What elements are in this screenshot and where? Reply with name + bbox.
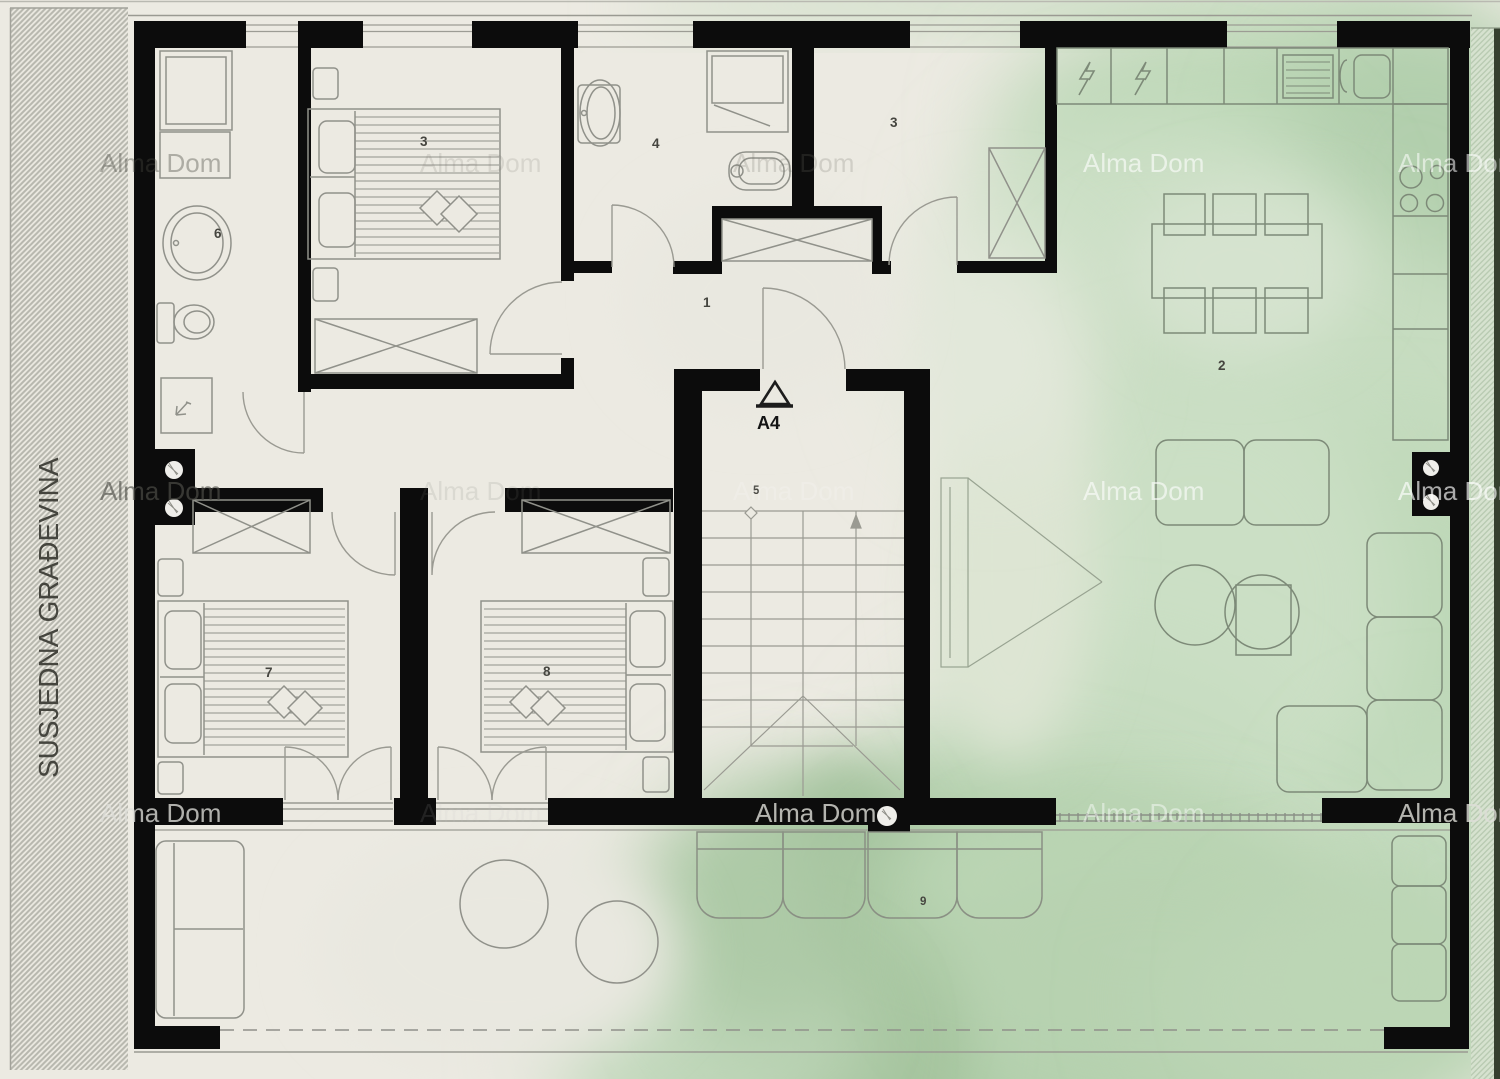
svg-text:Alma Dom: Alma Dom <box>100 798 221 828</box>
svg-text:7: 7 <box>265 665 273 680</box>
svg-text:Alma Dom: Alma Dom <box>420 148 541 178</box>
svg-text:A4: A4 <box>757 413 780 433</box>
svg-text:Alma Dom: Alma Dom <box>733 476 854 506</box>
svg-text:Alma Dom: Alma Dom <box>1083 476 1204 506</box>
svg-text:1: 1 <box>703 295 711 310</box>
svg-text:Alma Dom: Alma Dom <box>420 476 541 506</box>
svg-text:Alma Dom: Alma Dom <box>1398 476 1500 506</box>
svg-text:9: 9 <box>920 896 926 908</box>
svg-text:Alma Dom: Alma Dom <box>733 148 854 178</box>
svg-text:6: 6 <box>214 226 222 241</box>
svg-text:3: 3 <box>890 115 898 130</box>
svg-text:Alma Dom: Alma Dom <box>755 798 876 828</box>
svg-text:Alma Dom: Alma Dom <box>100 148 221 178</box>
svg-text:Alma Dom: Alma Dom <box>420 798 541 828</box>
svg-text:8: 8 <box>543 664 551 679</box>
svg-text:Alma Dom: Alma Dom <box>1398 148 1500 178</box>
svg-text:Alma Dom: Alma Dom <box>1398 798 1500 828</box>
svg-text:3: 3 <box>420 134 428 149</box>
svg-text:SUSJEDNA GRAĐEVINA: SUSJEDNA GRAĐEVINA <box>33 457 64 778</box>
svg-text:Alma Dom: Alma Dom <box>100 476 221 506</box>
svg-text:4: 4 <box>652 136 660 151</box>
svg-text:Alma Dom: Alma Dom <box>1083 148 1204 178</box>
svg-text:Alma Dom: Alma Dom <box>1083 798 1204 828</box>
svg-text:2: 2 <box>1218 358 1226 373</box>
